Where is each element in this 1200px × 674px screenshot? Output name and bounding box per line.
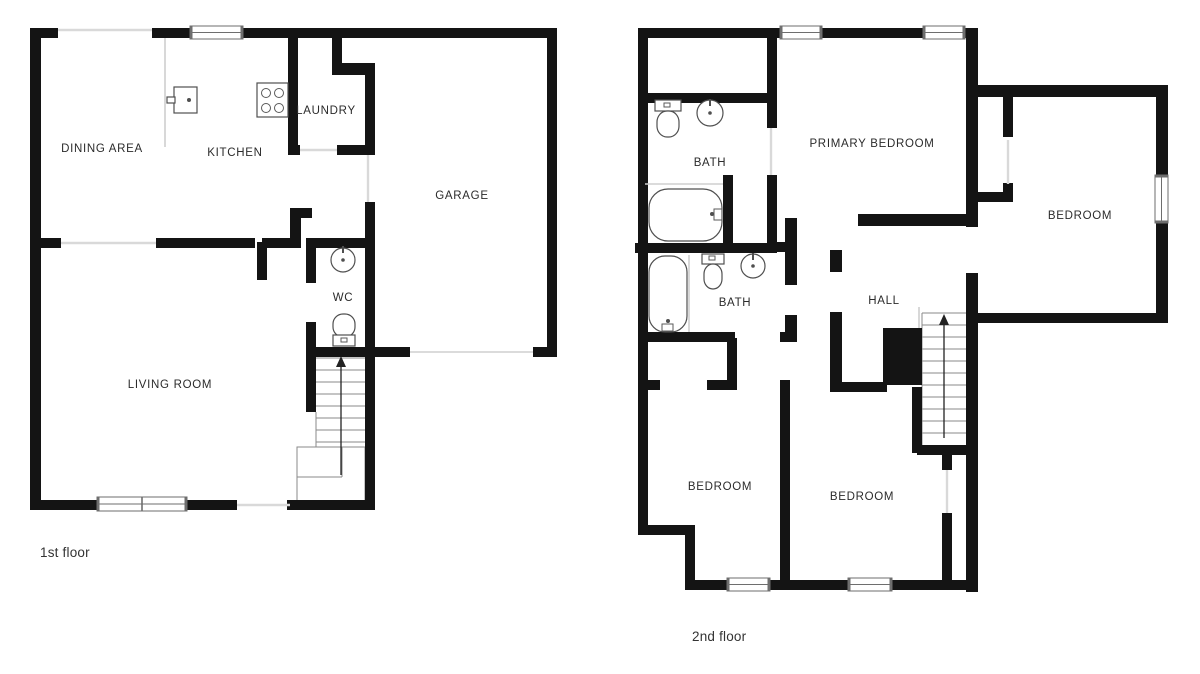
window-icon — [190, 26, 243, 39]
room-label-dining: DINING AREA — [61, 143, 143, 155]
floor1-plan: DINING AREA KITCHEN LAUNDRY GARAGE WC LI… — [30, 26, 557, 560]
room-label-wc: WC — [333, 292, 354, 304]
floor2-openings — [645, 128, 1008, 513]
window-icon — [97, 497, 187, 511]
room-label-bedroom-sw: BEDROOM — [688, 481, 752, 493]
wc-sink-icon — [331, 246, 355, 272]
bathtub-icon — [649, 256, 687, 332]
floor1-walls — [30, 28, 557, 510]
floor1-caption: 1st floor — [40, 545, 90, 560]
sink-icon — [697, 99, 723, 126]
room-label-kitchen: KITCHEN — [207, 147, 262, 159]
bathtub-icon — [649, 189, 722, 241]
room-label-laundry: LAUNDRY — [296, 105, 356, 117]
floor2-caption: 2nd floor — [692, 629, 747, 644]
floor2-plan: BATH PRIMARY BEDROOM BEDROOM BATH HALL B… — [635, 26, 1168, 644]
toilet-icon — [333, 314, 355, 346]
room-label-hall: HALL — [868, 295, 900, 307]
room-label-bedroom-se: BEDROOM — [830, 491, 894, 503]
room-label-bath-lower: BATH — [719, 297, 752, 309]
toilet-icon — [655, 100, 681, 137]
staircase-up-icon — [919, 307, 966, 445]
stove-icon — [257, 83, 288, 117]
room-label-bedroom-right: BEDROOM — [1048, 210, 1112, 222]
room-label-bath-upper: BATH — [694, 157, 727, 169]
window-icon — [727, 578, 770, 591]
floor-plan-canvas: DINING AREA KITCHEN LAUNDRY GARAGE WC LI… — [0, 0, 1200, 674]
room-label-primary-bedroom: PRIMARY BEDROOM — [809, 138, 934, 150]
room-label-living: LIVING ROOM — [128, 379, 212, 391]
toilet-icon — [702, 254, 724, 289]
room-label-garage: GARAGE — [435, 190, 488, 202]
window-icon — [1155, 175, 1168, 223]
window-icon — [848, 578, 892, 591]
kitchen-sink-icon — [167, 87, 197, 113]
window-icon — [780, 26, 822, 39]
sink-icon — [741, 253, 765, 278]
window-icon — [923, 26, 965, 39]
